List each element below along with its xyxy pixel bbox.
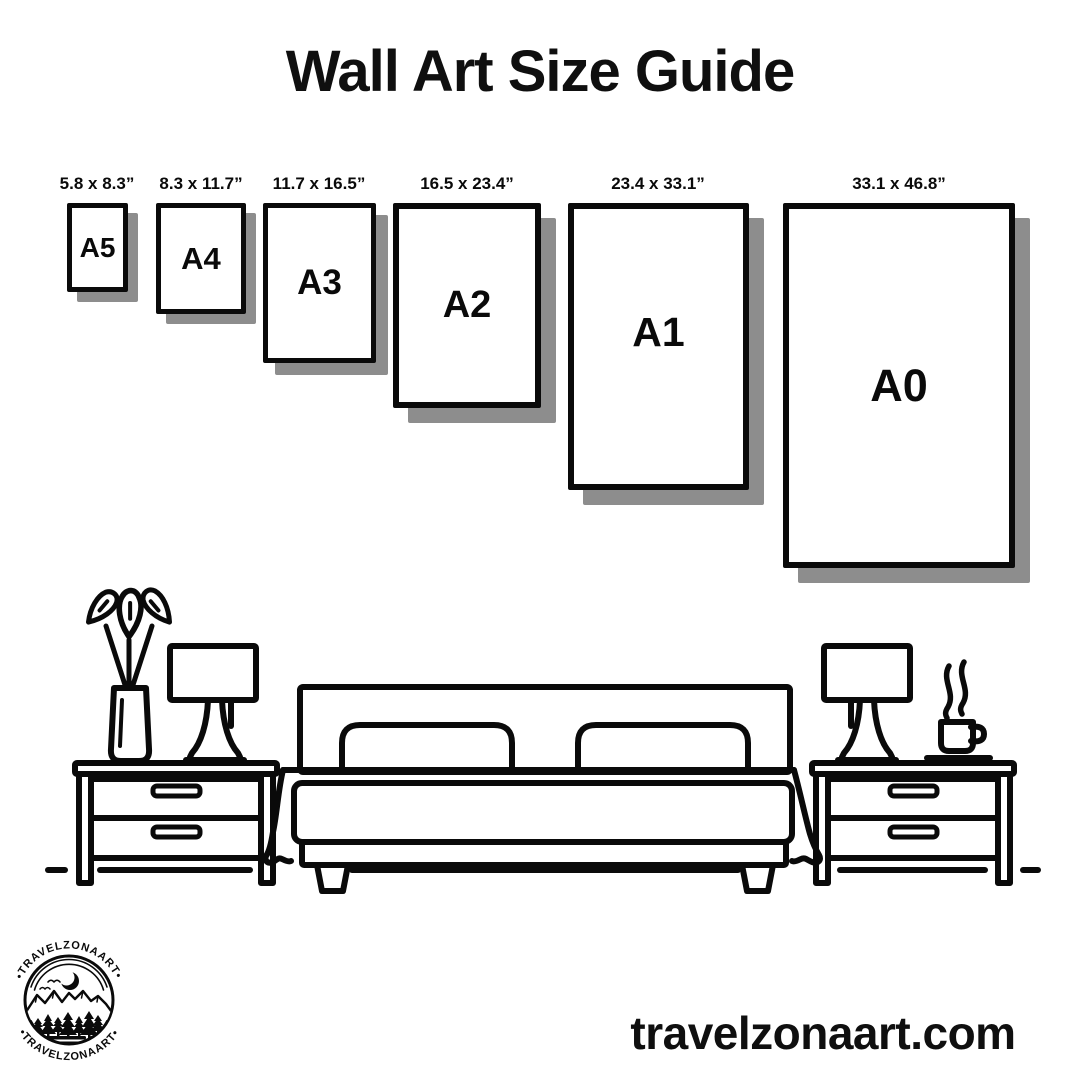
bed-icon (265, 687, 820, 891)
plant-leaves (82, 586, 177, 636)
blanket-drape-left (265, 770, 291, 863)
page-title: Wall Art Size Guide (0, 40, 1080, 104)
size-dimensions-a1: 23.4 x 33.1” (611, 174, 705, 194)
bed-leg-right (742, 865, 773, 891)
paper-letter-a2: A2 (443, 284, 492, 327)
vase-highlight (120, 700, 122, 746)
pillow-right (578, 725, 748, 771)
size-dimensions-a0: 33.1 x 46.8” (852, 174, 946, 194)
size-dimensions-a4: 8.3 x 11.7” (159, 174, 242, 194)
lamp-stem (874, 700, 892, 757)
paper-letter-a4: A4 (181, 241, 221, 277)
lamp-right-icon (824, 646, 910, 760)
vase (111, 688, 149, 761)
paper-a4: A4 (156, 203, 246, 314)
website-url: travelzonaart.com (600, 1006, 1046, 1060)
coffee-cup-icon (927, 662, 990, 758)
nightstand-right-top (812, 763, 1014, 774)
nightstand-left-icon (75, 763, 277, 883)
paper-a3: A3 (263, 203, 376, 363)
size-dimensions-a3: 11.7 x 16.5” (273, 174, 366, 194)
nightstand-right-icon (812, 763, 1014, 883)
nightstand-left-top (75, 763, 277, 774)
drawer-handle (890, 786, 937, 796)
paper-a0: A0 (783, 203, 1015, 568)
paper-a2: A2 (393, 203, 541, 408)
headboard (300, 687, 790, 772)
size-guide-poster: Wall Art Size Guide 5.8 x 8.3” A5 8.3 x … (0, 0, 1080, 1080)
size-dimensions-a2: 16.5 x 23.4” (420, 174, 514, 194)
paper-letter-a3: A3 (297, 263, 342, 303)
drawer-handle (153, 786, 200, 796)
bed-leg-left (317, 865, 348, 891)
lamp-stem (190, 700, 208, 757)
paper-letter-a1: A1 (632, 309, 684, 356)
mattress-sheet (294, 783, 792, 842)
paper-a1: A1 (568, 203, 749, 490)
paper-letter-a5: A5 (80, 232, 116, 264)
paper-letter-a0: A0 (870, 360, 928, 412)
vase-plant-icon (82, 586, 177, 761)
size-dimensions-a5: 5.8 x 8.3” (60, 174, 135, 194)
drawer-handle (153, 827, 200, 837)
bedroom-illustration (35, 580, 1045, 900)
lamp-shade (824, 646, 910, 700)
lamp-left-icon (170, 646, 256, 760)
drawer-handle (890, 827, 937, 837)
brand-logo-badge: •TRAVELZONAART• •TRAVELZONAART• (4, 935, 134, 1065)
steam-icon (946, 662, 966, 718)
bed-base (302, 842, 786, 865)
paper-a5: A5 (67, 203, 128, 292)
lamp-shade (170, 646, 256, 700)
pillow-left (342, 725, 512, 771)
